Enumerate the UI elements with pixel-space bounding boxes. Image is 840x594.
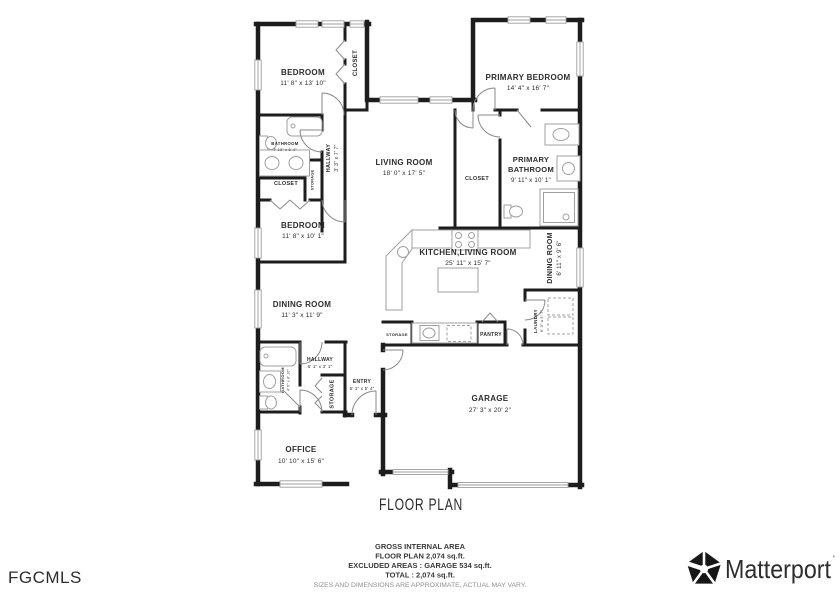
label-office: OFFICE <box>285 445 316 454</box>
room-labels: BEDROOM 11' 8" x 13' 10" CLOSET PRIMARY … <box>271 50 570 465</box>
kitchen-counter-l <box>386 230 412 310</box>
mls-watermark: FGCMLS <box>8 568 82 587</box>
vanity-top <box>260 150 310 176</box>
shower <box>540 189 578 226</box>
label-dining-left: DINING ROOM <box>273 300 331 309</box>
dims-primary-bathroom: 9' 11" x 10' 1" <box>511 177 551 184</box>
label-bathroom-tl: BATHROOM <box>271 141 299 146</box>
dims-primary-bedroom: 14' 4" x 16' 7" <box>507 85 550 92</box>
matterport-trademark: ' <box>833 554 835 564</box>
label-garage: GARAGE <box>472 394 509 403</box>
label-kitchen-living: KITCHEN,LIVING ROOM <box>419 248 516 257</box>
dims-bedroom-tl: 11' 8" x 13' 10" <box>280 80 326 87</box>
label-primary-bathroom-2: BATHROOM <box>508 165 554 174</box>
dims-dining-left: 11' 3" x 11' 9" <box>281 312 323 319</box>
stove <box>452 230 478 250</box>
matterport-wordmark: Matterport <box>725 554 832 584</box>
label-pantry: PANTRY <box>480 332 502 338</box>
label-primary-bedroom: PRIMARY BEDROOM <box>486 73 571 82</box>
label-storage-entry: STORAGE <box>330 379 336 408</box>
label-hallway-top: HALLWAY <box>326 144 332 173</box>
label-storage-kitchen: STORAGE <box>386 332 408 337</box>
dims-office: 10' 10" x 15' 6" <box>278 458 325 465</box>
page-title: FLOOR PLAN <box>379 495 463 514</box>
dims-entry: 5' 1" x 5' 4" <box>350 386 375 391</box>
label-primary-bathroom-1: PRIMARY <box>513 155 549 164</box>
dims-dining-right: 6' 11" x 9' 6" <box>557 240 563 275</box>
label-storage-bath: STORAGE <box>311 169 315 190</box>
label-bathroom-lower: BATHROOM <box>280 367 285 393</box>
primary-sink <box>557 156 580 181</box>
label-closet-right: CLOSET <box>465 176 489 182</box>
label-dining-right: DINING ROOM <box>547 232 554 284</box>
dishwasher <box>447 326 471 342</box>
label-entry: ENTRY <box>353 379 372 385</box>
dims-bathroom-lower: 4' 9" x 8' 10" <box>287 368 291 391</box>
dryer <box>548 317 573 334</box>
dims-living-room: 18' 0" x 17' 5" <box>383 170 426 177</box>
label-living-room: LIVING ROOM <box>375 158 432 167</box>
dims-hallway-lower: 6' 1" x 3' 1" <box>308 364 333 369</box>
dims-kitchen-living: 25' 11" x 15' 7" <box>445 260 491 267</box>
primary-vanity <box>545 124 579 145</box>
floor-plan-svg: BEDROOM 11' 8" x 13' 10" CLOSET PRIMARY … <box>0 0 840 594</box>
dims-hallway-top: 3' 3" x 7' 7" <box>334 144 340 171</box>
bathtub-lower <box>260 347 296 366</box>
label-closet-left: CLOSET <box>274 181 298 187</box>
floor-plan-page: BEDROOM 11' 8" x 13' 10" CLOSET PRIMARY … <box>0 0 840 594</box>
bathtub-top <box>287 117 322 136</box>
label-hallway-lower: HALLWAY <box>307 357 333 363</box>
footer-total-area: TOTAL : 2,074 sq.ft. <box>385 571 455 580</box>
washer <box>548 298 573 315</box>
label-laundry: LAUNDRY <box>533 309 538 333</box>
dims-laundry: 6' 3" x 5' 7" <box>539 309 544 332</box>
footer-disclaimer: SIZES AND DIMENSIONS ARE APPROXIMATE, AC… <box>314 582 527 589</box>
label-bedroom-tl: BEDROOM <box>281 68 325 77</box>
label-closet-tl: CLOSET <box>353 50 359 76</box>
dims-garage: 27' 3" x 20' 2" <box>469 407 512 414</box>
matterport-icon <box>687 551 721 584</box>
footer-floor-plan-area: FLOOR PLAN 2,074 sq.ft. <box>375 552 465 561</box>
dims-bedroom-left: 11' 8" x 10' 1" <box>282 233 324 240</box>
footer: GROSS INTERNAL AREA FLOOR PLAN 2,074 sq.… <box>314 542 527 589</box>
dims-bathroom-tl: 7' 10" x 6' 4" <box>273 148 297 152</box>
matterport-logo: Matterport ' <box>687 551 835 584</box>
kitchen-island <box>438 268 478 292</box>
label-bedroom-left: BEDROOM <box>281 221 325 230</box>
footer-gross-area: GROSS INTERNAL AREA <box>375 542 466 551</box>
footer-excluded-areas: EXCLUDED AREAS : GARAGE 534 sq.ft. <box>348 561 492 570</box>
